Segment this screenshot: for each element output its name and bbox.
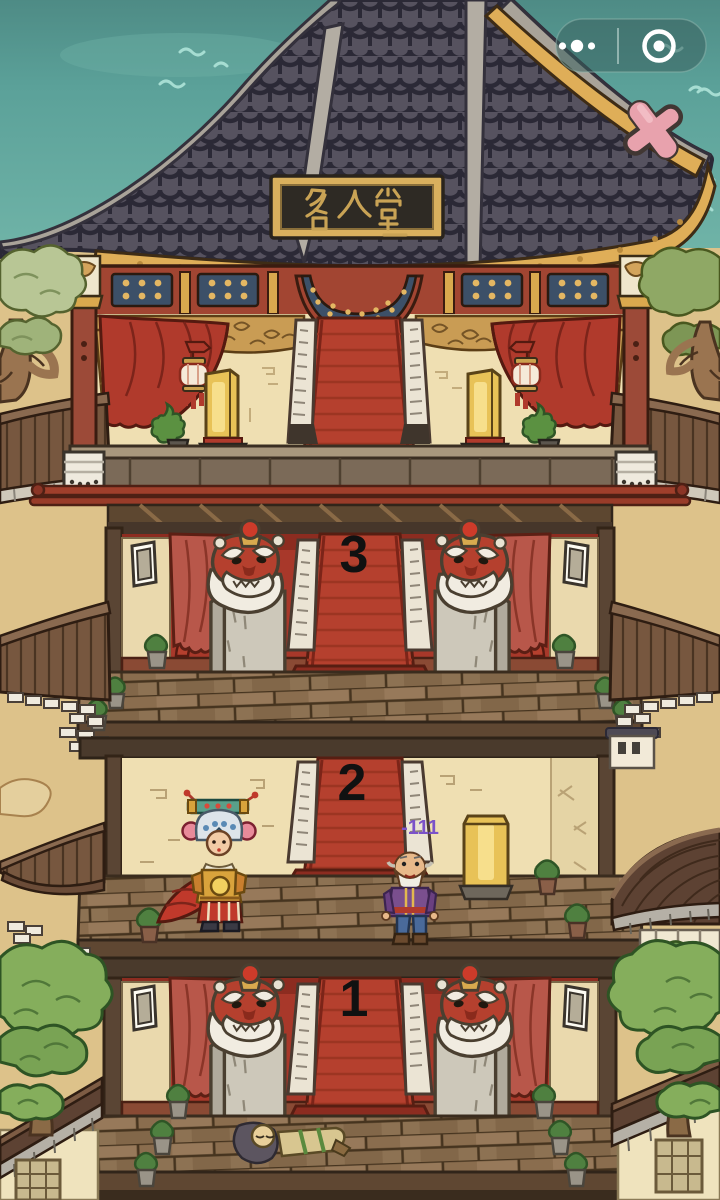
svg-text:1: 1 [340,970,369,1028]
svg-text:3: 3 [340,526,369,584]
svg-text:-111: -111 [401,817,439,839]
svg-text:2: 2 [338,754,367,812]
